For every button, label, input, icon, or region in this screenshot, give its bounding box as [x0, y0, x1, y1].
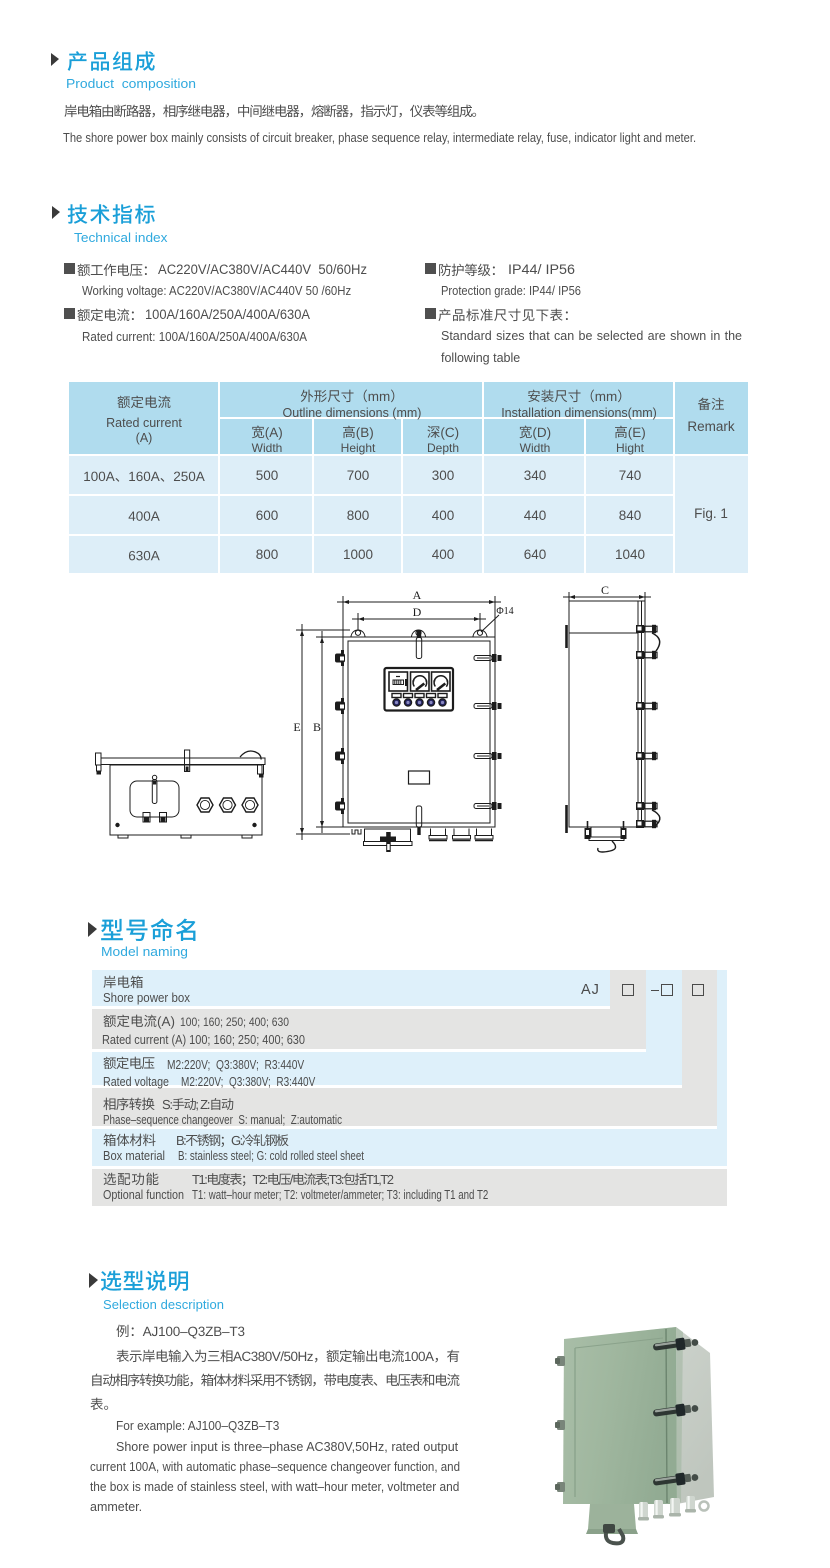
svg-text:E: E: [293, 720, 300, 734]
svg-text:A: A: [413, 588, 422, 602]
svg-text:B: B: [313, 720, 321, 734]
svg-text:Φ14: Φ14: [496, 606, 513, 617]
svg-text:C: C: [601, 583, 609, 597]
svg-text:D: D: [413, 605, 422, 619]
